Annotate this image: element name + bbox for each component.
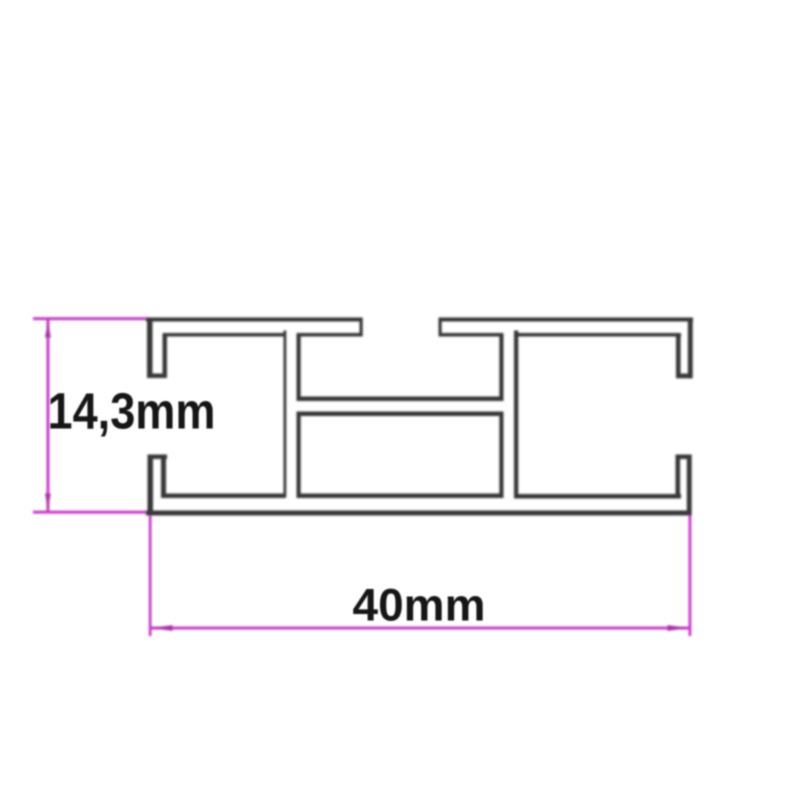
svg-text:14,3mm: 14,3mm (48, 383, 216, 440)
svg-text:40mm: 40mm (353, 580, 486, 631)
